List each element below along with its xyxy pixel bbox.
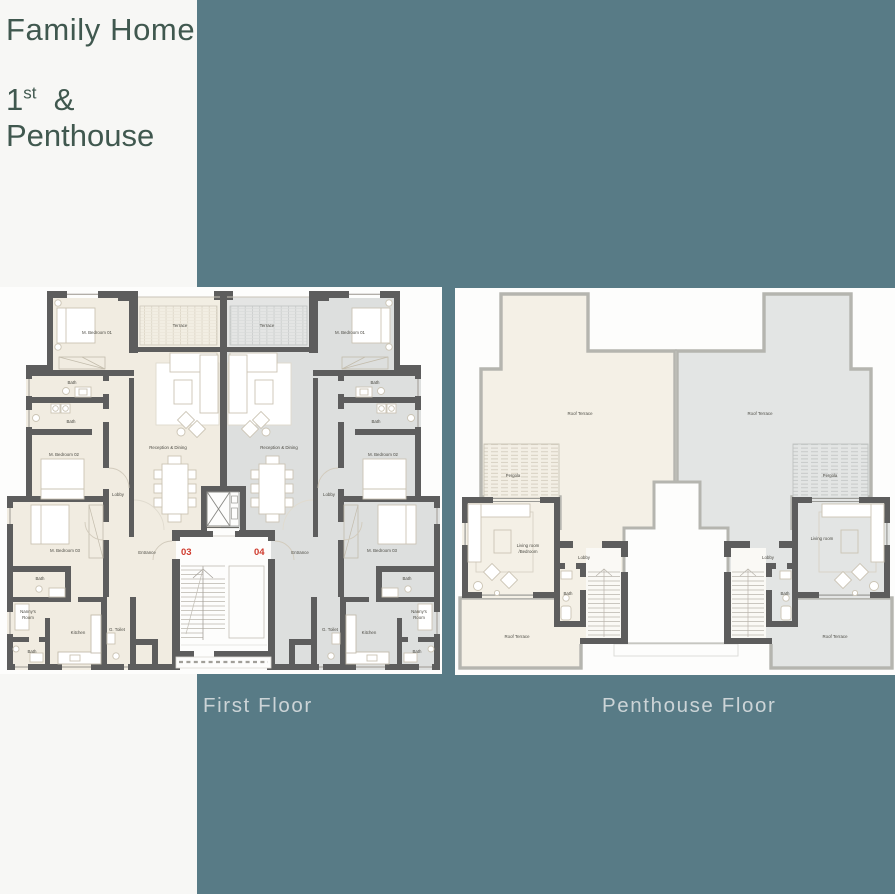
svg-text:Bath: Bath xyxy=(67,380,77,385)
svg-text:Reception & Dining: Reception & Dining xyxy=(260,445,298,450)
svg-text:Reception & Dining: Reception & Dining xyxy=(149,445,187,450)
svg-text:Kitchen: Kitchen xyxy=(362,630,377,635)
svg-text:Room: Room xyxy=(413,615,425,620)
svg-text:M. Bedroom 03: M. Bedroom 03 xyxy=(50,548,81,553)
svg-text:G. Toilet: G. Toilet xyxy=(109,627,126,632)
svg-text:Roof Terrace: Roof Terrace xyxy=(822,634,848,639)
svg-text:Lobby: Lobby xyxy=(578,555,591,560)
svg-text:Entrance: Entrance xyxy=(138,550,156,555)
svg-text:Terrace: Terrace xyxy=(260,323,275,328)
svg-text:M. Bedroom 03: M. Bedroom 03 xyxy=(367,548,398,553)
svg-text:Nanny's: Nanny's xyxy=(411,609,428,614)
svg-text:Roof Terrace: Roof Terrace xyxy=(567,411,593,416)
svg-text:Room: Room xyxy=(22,615,34,620)
svg-text:/Bedroom: /Bedroom xyxy=(518,549,537,554)
svg-text:Lobby: Lobby xyxy=(112,492,125,497)
svg-text:Bath: Bath xyxy=(563,591,573,596)
svg-text:Living room: Living room xyxy=(811,536,834,541)
svg-text:Pergola: Pergola xyxy=(823,473,838,478)
svg-text:Terrace: Terrace xyxy=(173,323,188,328)
svg-text:Kitchen: Kitchen xyxy=(71,630,86,635)
svg-text:G. Toilet: G. Toilet xyxy=(322,627,339,632)
svg-text:Entrance: Entrance xyxy=(291,550,309,555)
svg-text:Bath: Bath xyxy=(66,419,76,424)
svg-text:Bath: Bath xyxy=(371,419,381,424)
svg-text:Bath: Bath xyxy=(35,576,45,581)
svg-text:Lobby: Lobby xyxy=(323,492,336,497)
svg-text:Bath: Bath xyxy=(780,591,790,596)
svg-text:Living room: Living room xyxy=(517,543,540,548)
svg-text:Bath: Bath xyxy=(370,380,380,385)
svg-text:Pergola: Pergola xyxy=(506,473,521,478)
svg-text:Bath: Bath xyxy=(412,649,422,654)
svg-text:Nanny's: Nanny's xyxy=(20,609,37,614)
svg-text:Lobby: Lobby xyxy=(762,555,775,560)
svg-text:M. Bedroom 01: M. Bedroom 01 xyxy=(82,330,113,335)
svg-text:M. Bedroom 01: M. Bedroom 01 xyxy=(335,330,366,335)
svg-text:Roof Terrace: Roof Terrace xyxy=(747,411,773,416)
svg-text:M. Bedroom 02: M. Bedroom 02 xyxy=(49,452,80,457)
svg-text:03: 03 xyxy=(181,547,192,558)
svg-text:Bath: Bath xyxy=(27,649,37,654)
svg-text:M. Bedroom 02: M. Bedroom 02 xyxy=(368,452,399,457)
svg-text:Bath: Bath xyxy=(402,576,412,581)
svg-text:Roof Terrace: Roof Terrace xyxy=(504,634,530,639)
svg-text:04: 04 xyxy=(254,547,265,558)
